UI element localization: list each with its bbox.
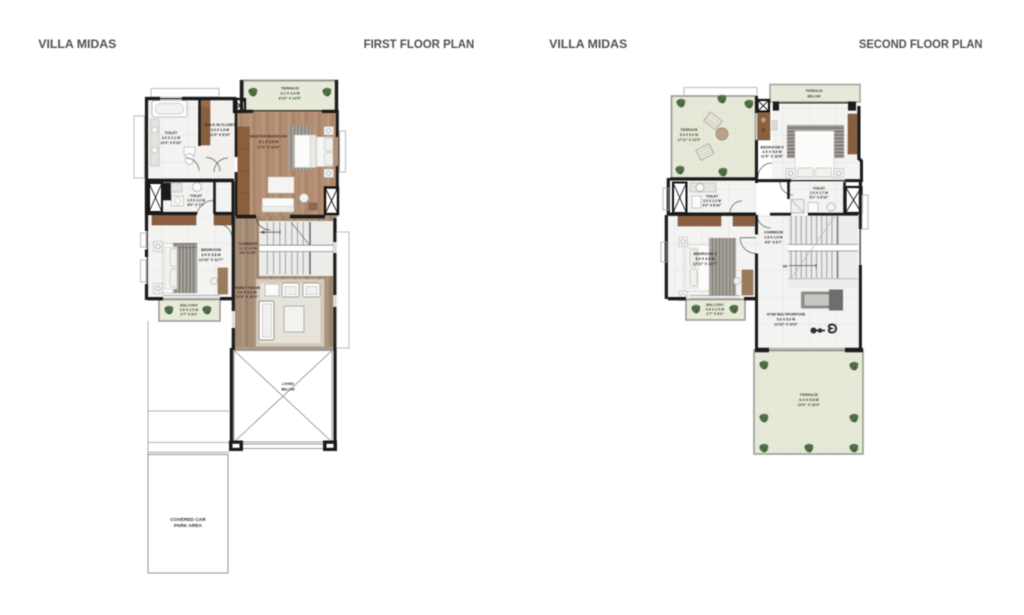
svg-text:12'10" X 12'7": 12'10" X 12'7" xyxy=(199,258,224,262)
svg-text:SECOND FLOOR PLAN: SECOND FLOOR PLAN xyxy=(859,37,983,51)
svg-text:TERRACE: TERRACE xyxy=(281,87,300,91)
svg-text:12'11" X 12'7": 12'11" X 12'7" xyxy=(693,262,718,266)
svg-text:BALCONY: BALCONY xyxy=(180,304,198,308)
svg-text:14'0" X 16'6": 14'0" X 16'6" xyxy=(798,403,821,407)
svg-text:3.0 X 2.1 M: 3.0 X 2.1 M xyxy=(162,136,180,140)
svg-text:0.8 X 2.5 M: 0.8 X 2.5 M xyxy=(706,308,724,312)
svg-text:6.4 X 5.8 M: 6.4 X 5.8 M xyxy=(799,398,818,402)
svg-text:5.6 X 5.0 M: 5.6 X 5.0 M xyxy=(777,318,795,322)
svg-text:9'2" X 6'10": 9'2" X 6'10" xyxy=(703,204,722,208)
svg-text:8'9" X 6'7": 8'9" X 6'7" xyxy=(765,241,782,245)
svg-text:PARK AREA: PARK AREA xyxy=(174,523,203,529)
svg-text:2.6 X 1.6 M: 2.6 X 1.6 M xyxy=(765,236,783,240)
svg-text:BEDROOM 4: BEDROOM 4 xyxy=(694,252,718,256)
svg-text:BELOW: BELOW xyxy=(281,388,295,392)
svg-text:2'7" X 8'4": 2'7" X 8'4" xyxy=(180,313,198,317)
svg-text:TOILET: TOILET xyxy=(165,131,179,135)
svg-text:1.5 X 2.2 M: 1.5 X 2.2 M xyxy=(187,199,205,203)
svg-text:3.9 X 3.8 M: 3.9 X 3.8 M xyxy=(201,253,220,257)
svg-text:TERRACE: TERRACE xyxy=(800,393,819,397)
svg-text:3.5 X 5.0 M: 3.5 X 5.0 M xyxy=(762,150,781,154)
svg-text:0.8 X 2.5 M: 0.8 X 2.5 M xyxy=(180,308,198,312)
svg-text:11'5" X 16'8": 11'5" X 16'8" xyxy=(761,155,784,159)
svg-text:5.0 X 5.0 M: 5.0 X 5.0 M xyxy=(237,291,256,295)
svg-text:BALCONY: BALCONY xyxy=(706,303,724,307)
svg-text:TERRACE: TERRACE xyxy=(805,89,823,93)
svg-text:BEDROOM: BEDROOM xyxy=(201,248,221,252)
svg-text:3.0 X 2.2 M: 3.0 X 2.2 M xyxy=(703,199,721,203)
svg-text:BEDROOM 5: BEDROOM 5 xyxy=(761,146,784,150)
svg-text:TOILET: TOILET xyxy=(813,187,826,191)
svg-text:TOILET: TOILET xyxy=(190,194,203,198)
svg-text:2.0 X 2.7 M: 2.0 X 2.7 M xyxy=(810,191,828,195)
svg-text:CORRIDOR: CORRIDOR xyxy=(764,231,784,235)
svg-text:3.2 X 4.4 M: 3.2 X 4.4 M xyxy=(280,92,299,96)
svg-text:GYM/ MULTIPURPOSE: GYM/ MULTIPURPOSE xyxy=(767,313,806,317)
svg-text:1.1 X 1.4 M: 1.1 X 1.4 M xyxy=(239,247,257,251)
svg-text:5.9 X 5.0 M: 5.9 X 5.0 M xyxy=(680,133,698,137)
svg-text:8'10" X 14'5": 8'10" X 14'5" xyxy=(279,97,302,101)
svg-text:COVERED CAR: COVERED CAR xyxy=(170,517,206,523)
svg-text:3'6" X 3'5": 3'6" X 3'5" xyxy=(239,251,256,255)
svg-text:5'1" X 8'10": 5'1" X 8'10" xyxy=(810,196,829,200)
svg-text:5.1 X 5.5 M: 5.1 X 5.5 M xyxy=(259,140,278,144)
svg-text:LIVING: LIVING xyxy=(282,382,294,386)
svg-text:17'11" X 12'9": 17'11" X 12'9" xyxy=(677,138,701,142)
svg-text:MASTER BEDROOM: MASTER BEDROOM xyxy=(250,135,287,139)
svg-text:17'5" X 14'5": 17'5" X 14'5" xyxy=(257,145,280,149)
svg-text:BELOW: BELOW xyxy=(807,95,821,99)
svg-text:12'9" X 16'4": 12'9" X 16'4" xyxy=(236,295,259,299)
svg-text:3.9 X 3.8 M: 3.9 X 3.8 M xyxy=(695,257,714,261)
svg-text:VILLA MIDAS: VILLA MIDAS xyxy=(549,37,627,51)
svg-text:3.9 X 1.8 M: 3.9 X 1.8 M xyxy=(211,128,229,132)
svg-text:2'7" X 8'4": 2'7" X 8'4" xyxy=(706,312,724,316)
svg-text:DN: DN xyxy=(783,265,788,269)
svg-text:TERRACE: TERRACE xyxy=(680,128,698,132)
svg-text:TOILET: TOILET xyxy=(706,195,719,199)
svg-text:FAMILY ROOM: FAMILY ROOM xyxy=(234,286,260,290)
svg-text:VILLA MIDAS: VILLA MIDAS xyxy=(38,37,116,51)
svg-text:FIRST FLOOR PLAN: FIRST FLOOR PLAN xyxy=(364,37,475,51)
svg-text:12'9" X 5'10": 12'9" X 5'10" xyxy=(209,133,231,137)
svg-text:12'10" X 16'8": 12'10" X 16'8" xyxy=(774,323,798,327)
svg-text:WALK IN CLOSET: WALK IN CLOSET xyxy=(205,123,237,127)
svg-text:CORRIDOR: CORRIDOR xyxy=(238,242,258,246)
svg-text:12'0" X 6'10": 12'0" X 6'10" xyxy=(160,141,182,145)
